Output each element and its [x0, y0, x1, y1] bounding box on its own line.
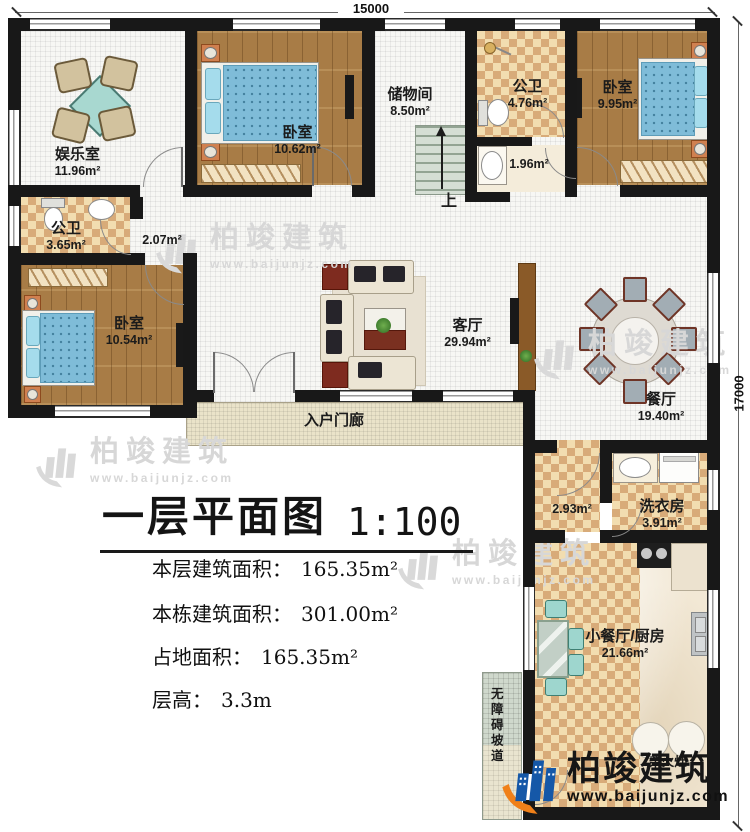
- sink-basin: [695, 617, 706, 633]
- dining-chair-icon: [671, 327, 697, 351]
- room-label-dining: 餐厅19.40m²: [622, 391, 700, 423]
- room-label-corridor: 2.93m²: [543, 502, 601, 517]
- wall-segment: [523, 395, 535, 587]
- dining-table-icon: [611, 317, 659, 365]
- coffee-table-icon: [364, 330, 406, 350]
- dining-chair-icon: [579, 327, 605, 351]
- brand-logo-icon: [497, 752, 561, 816]
- room-label-kitchen: 小餐厅/厨房21.66m²: [575, 628, 675, 660]
- sink-icon: [88, 199, 115, 220]
- room-label-porch: 入户门廊: [294, 412, 374, 430]
- dimension-label-height: 17000: [732, 361, 747, 427]
- pillow-icon: [694, 66, 708, 96]
- stove-icon: [637, 541, 671, 568]
- wall-segment: [565, 185, 577, 197]
- room-label-bedroom-top-left: 卧室10.62m²: [255, 124, 340, 156]
- window: [707, 273, 720, 363]
- room-label-storage: 储物间8.50m²: [370, 86, 450, 118]
- side-table-icon: [322, 362, 348, 388]
- window: [55, 405, 150, 418]
- wall-segment: [183, 253, 197, 418]
- stat-label: 占地面积：: [152, 645, 252, 669]
- washer-panel: [663, 456, 696, 462]
- window: [443, 390, 513, 402]
- nightstand-icon: [201, 143, 220, 161]
- wall-segment: [513, 390, 535, 402]
- dimension-label-width: 15000: [338, 1, 404, 16]
- nightstand-icon: [24, 386, 41, 403]
- pillow-icon: [205, 102, 221, 134]
- stat-label: 本层建筑面积：: [152, 557, 292, 581]
- wardrobe-icon: [201, 164, 301, 183]
- stat-line: 本层建筑面积：165.35m²: [152, 553, 398, 582]
- washer-icon: [659, 452, 699, 483]
- window: [385, 18, 445, 31]
- stat-line: 层高：3.3m: [152, 684, 272, 713]
- wardrobe-icon: [620, 160, 709, 183]
- door-leaf: [181, 147, 183, 187]
- sofa-cushion: [354, 266, 376, 282]
- room-label-wash-area: 1.96m²: [504, 157, 554, 172]
- wall-segment: [465, 192, 510, 202]
- sink-basin: [695, 636, 706, 652]
- stat-value: 301.00m²: [301, 602, 398, 626]
- wall-segment: [295, 390, 340, 402]
- wall-segment: [707, 18, 720, 820]
- room-label-living: 客厅29.94m²: [430, 317, 505, 349]
- bed-blanket: [40, 313, 94, 383]
- wall-segment: [600, 440, 708, 453]
- tv-cabinet-icon: [518, 263, 536, 391]
- wall-segment: [477, 137, 532, 146]
- room-label-bath-left: 公卫3.65m²: [35, 220, 97, 252]
- window: [233, 18, 320, 31]
- room-label-entertainment: 娱乐室11.96m²: [40, 146, 115, 178]
- stat-value: 165.35m²: [301, 557, 398, 581]
- pillow-icon: [26, 348, 40, 378]
- sofa-cushion: [383, 266, 405, 282]
- stove-burner: [641, 548, 652, 559]
- window: [523, 587, 535, 670]
- wall-segment: [620, 185, 708, 197]
- wall-segment: [197, 185, 312, 197]
- wall-segment: [130, 197, 143, 219]
- window: [8, 206, 21, 246]
- door-leaf: [293, 352, 295, 393]
- brand-name: 柏竣建筑: [567, 752, 729, 786]
- room-label-laundry: 洗衣房3.91m²: [628, 498, 696, 530]
- stairs-arrow-icon: [441, 134, 443, 189]
- side-table-icon: [322, 264, 348, 290]
- watermark-logo-icon: [30, 438, 82, 490]
- tv-icon: [345, 75, 354, 119]
- room-label-bath-top: 公卫4.76m²: [495, 78, 560, 110]
- stat-label: 层高：: [152, 688, 212, 712]
- pillow-icon: [694, 98, 708, 128]
- plant-icon: [520, 350, 532, 362]
- counter-icon: [671, 543, 709, 591]
- pillow-icon: [205, 68, 221, 100]
- wall-segment: [465, 31, 477, 202]
- wall-segment: [412, 390, 443, 402]
- room-label-hallway: 2.07m²: [136, 233, 188, 248]
- stat-value: 165.35m²: [261, 645, 358, 669]
- wall-segment: [197, 390, 214, 402]
- pillow-icon: [26, 316, 40, 346]
- kitchen-chair-icon: [545, 678, 567, 696]
- stat-line: 占地面积：165.35m²: [152, 641, 358, 670]
- brand-logo: 柏竣建筑 www.baijunjz.com: [497, 752, 729, 816]
- brand-url: www.baijunjz.com: [567, 789, 729, 805]
- stove-burner: [656, 548, 667, 559]
- floor-plan: 柏竣建筑 www.baijunjz.com 柏竣建筑 www.baijunjz.…: [0, 0, 750, 832]
- dining-chair-icon: [623, 277, 647, 302]
- stat-label: 本栋建筑面积：: [152, 602, 292, 626]
- wardrobe-icon: [28, 268, 108, 287]
- title-block: 一层平面图 1:100: [100, 483, 473, 553]
- sofa-cushion: [358, 362, 382, 378]
- shower-icon: [484, 42, 496, 54]
- wall-segment: [352, 185, 375, 197]
- plan-scale: 1:100: [347, 500, 461, 544]
- room-label-bedroom-left: 卧室10.54m²: [95, 315, 163, 347]
- sink-icon: [619, 457, 651, 478]
- wall-segment: [535, 530, 565, 543]
- window: [340, 390, 412, 402]
- window: [515, 18, 560, 31]
- wall-segment: [8, 253, 145, 265]
- sofa-cushion: [326, 300, 342, 324]
- door-leaf: [213, 352, 215, 393]
- sofa-cushion: [326, 330, 342, 354]
- window: [707, 590, 720, 668]
- kitchen-table-icon: [537, 620, 569, 678]
- wall-segment: [600, 453, 612, 503]
- wall-segment: [183, 185, 197, 197]
- wall-segment: [535, 440, 557, 453]
- stairs-arrow-icon: [436, 126, 446, 136]
- game-chair-icon: [99, 55, 139, 92]
- room-label-bedroom-top-right: 卧室9.95m²: [585, 79, 650, 111]
- sink-icon: [481, 151, 503, 180]
- stairs-direction-label: 上: [437, 193, 461, 212]
- plant-icon: [376, 318, 391, 333]
- window: [707, 470, 720, 510]
- tv-icon: [510, 298, 519, 344]
- stat-line: 本栋建筑面积：301.00m²: [152, 598, 398, 627]
- plan-title: 一层平面图: [102, 483, 327, 544]
- kitchen-chair-icon: [545, 600, 567, 618]
- wall-segment: [8, 185, 140, 197]
- wall-segment: [185, 31, 197, 185]
- window: [600, 18, 695, 31]
- nightstand-icon: [201, 44, 220, 62]
- stat-value: 3.3m: [221, 688, 272, 712]
- window: [8, 110, 21, 185]
- window: [30, 18, 110, 31]
